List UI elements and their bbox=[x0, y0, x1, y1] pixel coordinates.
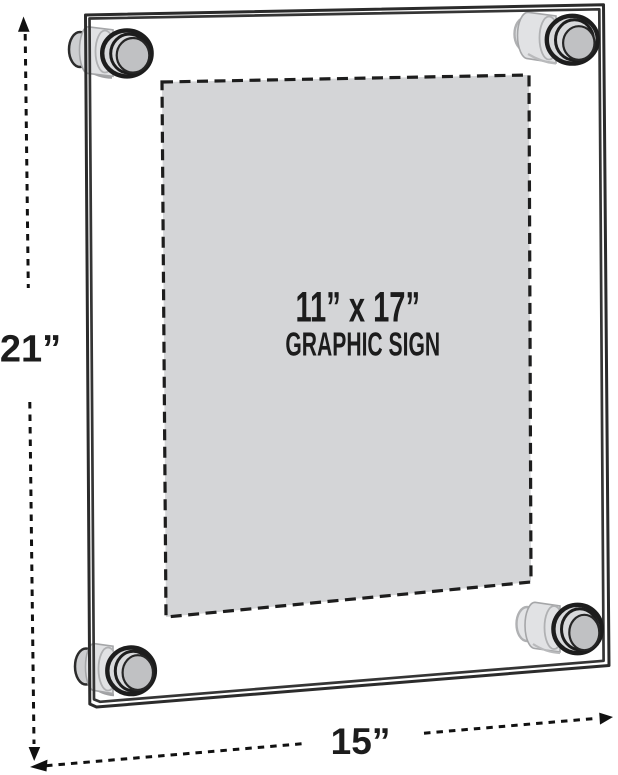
svg-text:21”: 21” bbox=[0, 329, 61, 371]
svg-text:11” x 17”: 11” x 17” bbox=[295, 283, 420, 331]
svg-text:15”: 15” bbox=[331, 721, 391, 762]
svg-text:GRAPHIC SIGN: GRAPHIC SIGN bbox=[285, 326, 440, 363]
